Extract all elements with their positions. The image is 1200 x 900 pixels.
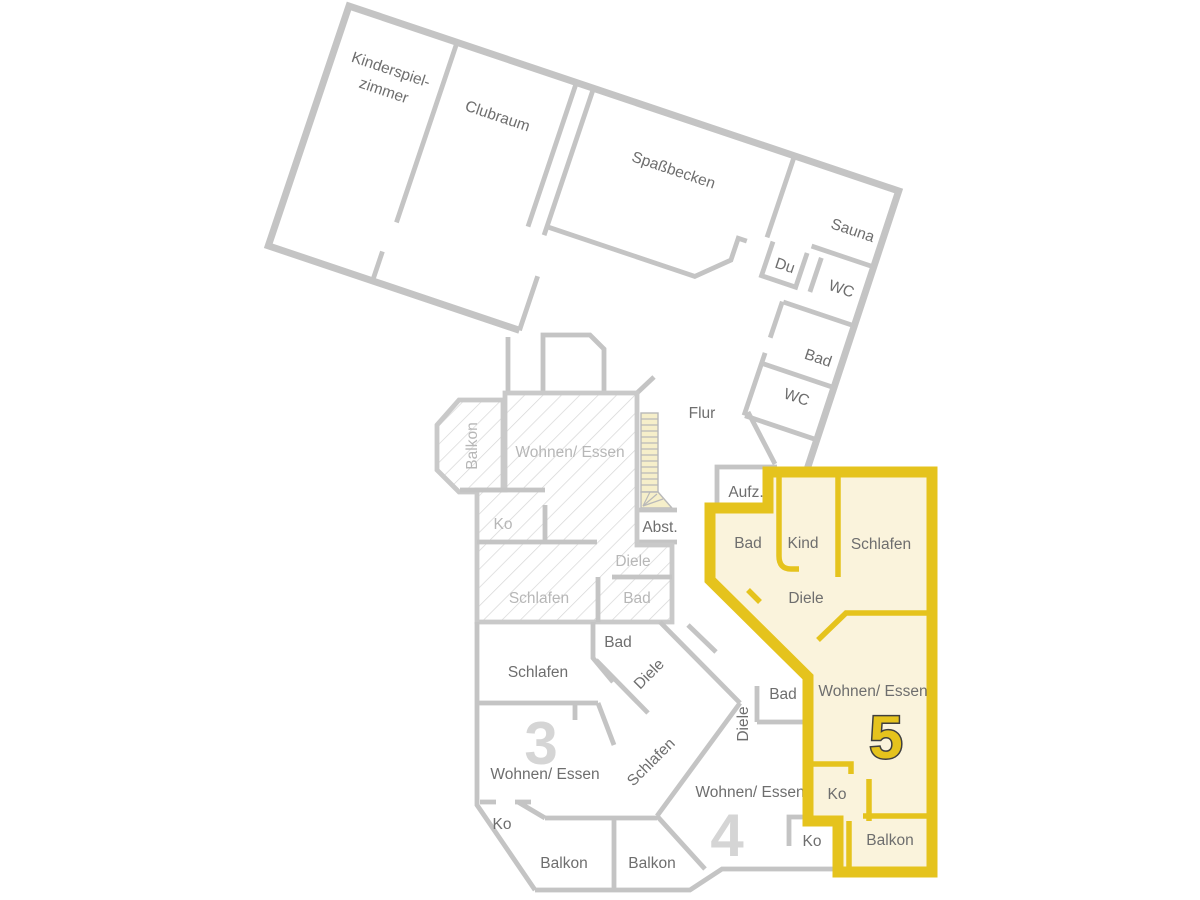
balkon-band-walls — [545, 818, 657, 890]
apartment-4-number[interactable]: 4 — [710, 802, 744, 869]
room-label-hatched-wohnen: Wohnen/ Essen — [515, 444, 624, 461]
wall-pool-edge — [547, 179, 747, 288]
room-label-apt4-bad: Bad — [769, 686, 797, 703]
room-label-apt3-ko: Ko — [493, 816, 512, 833]
room-label-clubraum: Clubraum — [463, 98, 532, 136]
building-bottom-wall — [535, 869, 833, 890]
room-label-hatched-schlafen: Schlafen — [509, 590, 569, 607]
room-label-apt4-schlafen: Schlafen — [624, 735, 679, 790]
wing-passage-jamb — [519, 276, 537, 330]
room-label-apt3-wohnen: Wohnen/ Essen — [490, 766, 599, 783]
room-label-apt5-schlafen: Schlafen — [851, 536, 911, 553]
room-label-apt4-diele: Diele — [735, 706, 752, 741]
staircase — [641, 413, 672, 508]
apt3-ko-walls — [480, 802, 545, 818]
room-label-hatched-ko: Ko — [494, 516, 513, 533]
floor-plan-svg: Kinderspiel- zimmer Clubraum Spaßbecken … — [0, 0, 1200, 900]
room-label-du: Du — [773, 255, 797, 277]
room-label-bad-wing: Bad — [802, 346, 834, 371]
room-label-apt4-ko: Ko — [803, 833, 822, 850]
room-label-abstell: Abst. — [642, 519, 677, 536]
wall-stub-kinderspielzimmer — [373, 251, 383, 280]
room-label-aufzug: Aufz. — [728, 484, 763, 501]
wall-stair-jamb — [637, 377, 654, 393]
wall-wc-left — [810, 258, 821, 292]
room-label-apt5-wohnen: Wohnen/ Essen — [818, 683, 927, 700]
wall-clubraum-spassbecken — [527, 84, 593, 235]
room-label-apt5-balkon: Balkon — [866, 832, 913, 849]
apartment-hatched[interactable]: Wohnen/ Essen Ko Schlafen Diele Bad Balk… — [437, 393, 672, 622]
room-label-spassbecken: Spaßbecken — [629, 149, 717, 193]
room-label-hatched-bad: Bad — [623, 590, 651, 607]
wall-band-corridor — [744, 302, 782, 416]
room-label-apt5-diele: Diele — [788, 590, 823, 607]
room-label-apt3-balkon: Balkon — [540, 855, 587, 872]
room-label-hatched-balkon: Balkon — [464, 422, 481, 469]
room-label-apt3-bad: Bad — [604, 634, 632, 651]
wall-sauna-left — [767, 158, 794, 238]
walls-shaft-room — [543, 335, 604, 393]
room-label-apt5-bad: Bad — [734, 535, 762, 552]
room-label-apt4-wohnen: Wohnen/ Essen — [695, 784, 804, 801]
room-label-flur: Flur — [689, 405, 716, 422]
room-label-apt5-ko: Ko — [828, 786, 847, 803]
room-label-apt4-balkon: Balkon — [628, 855, 675, 872]
room-label-wc-top: WC — [826, 277, 856, 301]
apt4-schlafen-west-wall — [598, 703, 614, 745]
room-label-apt5-kind: Kind — [787, 535, 818, 552]
room-label-sauna: Sauna — [829, 216, 877, 247]
room-label-apt3-schlafen: Schlafen — [508, 664, 568, 681]
apartment-5-number[interactable]: 5 — [869, 704, 902, 771]
room-label-hatched-diele: Diele — [615, 553, 650, 570]
room-label-wc-bottom: WC — [781, 385, 811, 409]
apt4-entry-wall — [688, 625, 716, 652]
floor-plan-page: Kinderspiel- zimmer Clubraum Spaßbecken … — [0, 0, 1200, 900]
room-label-apt3-diele: Diele — [631, 656, 668, 693]
